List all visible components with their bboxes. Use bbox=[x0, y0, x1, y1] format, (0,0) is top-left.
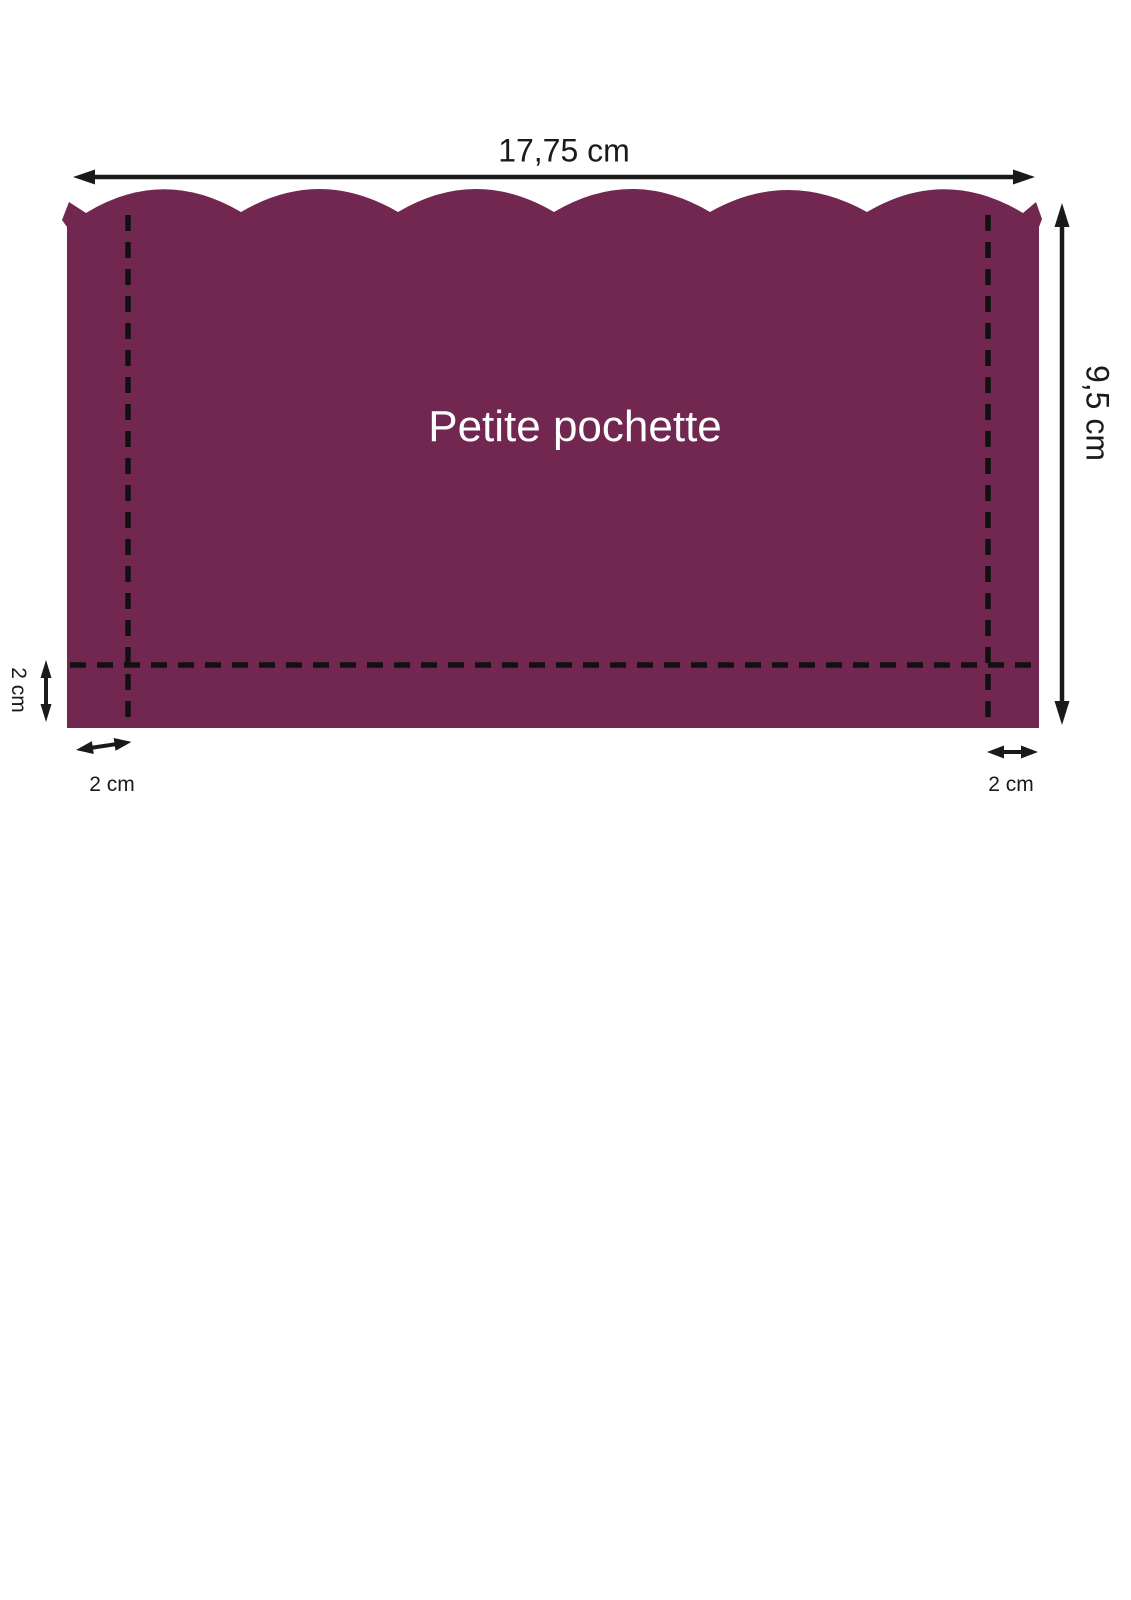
height-dimension-arrow bbox=[1055, 203, 1070, 725]
seam-left-label: 2 cm bbox=[6, 667, 30, 713]
arrowhead-right-icon bbox=[114, 735, 133, 750]
width-dimension-label: 17,75 cm bbox=[498, 133, 630, 170]
width-dimension-arrow bbox=[73, 170, 1035, 185]
arrowhead-left-icon bbox=[987, 746, 1004, 759]
seam-bottom-right-label: 2 cm bbox=[988, 773, 1034, 797]
arrowhead-up-icon bbox=[41, 660, 52, 678]
arrowhead-right-icon bbox=[1013, 170, 1035, 185]
arrowhead-down-icon bbox=[41, 704, 52, 722]
arrowhead-left-icon bbox=[73, 170, 95, 185]
seam-bottom-left-label: 2 cm bbox=[89, 773, 135, 797]
arrowhead-left-icon bbox=[75, 741, 94, 756]
height-dimension-label: 9,5 cm bbox=[1079, 365, 1116, 461]
seam-bottom-right-dimension-arrow bbox=[987, 746, 1038, 759]
arrowhead-right-icon bbox=[1021, 746, 1038, 759]
arrowhead-up-icon bbox=[1055, 203, 1070, 227]
arrowhead-down-icon bbox=[1055, 701, 1070, 725]
seam-bottom-left-dimension-arrow bbox=[75, 735, 132, 756]
seam-left-dimension-arrow bbox=[41, 660, 52, 722]
sewing-pattern-canvas: 17,75 cm 9,5 cm Petite pochette 2 cm 2 c… bbox=[0, 0, 1131, 1600]
pouch-shape bbox=[62, 189, 1042, 728]
pattern-piece-title: Petite pochette bbox=[428, 402, 722, 452]
